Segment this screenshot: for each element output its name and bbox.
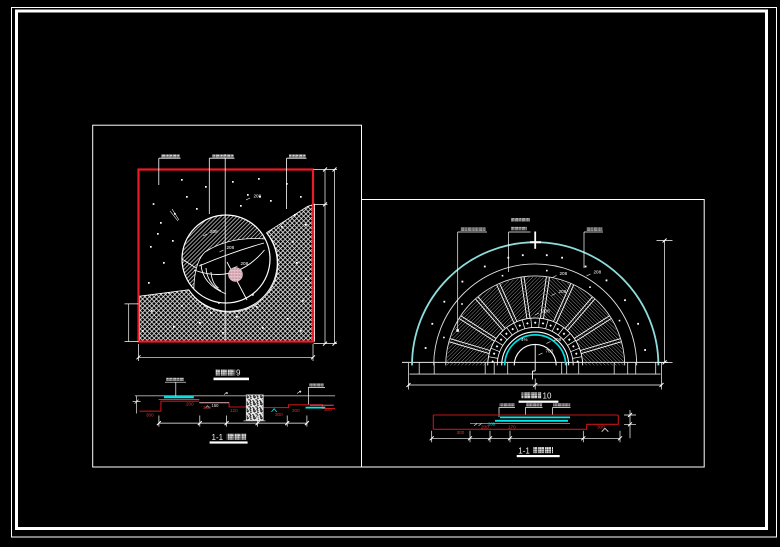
svg-text:208: 208	[227, 245, 235, 250]
svg-text:300: 300	[324, 407, 332, 412]
svg-text:300: 300	[146, 413, 154, 418]
svg-text:208: 208	[488, 422, 496, 427]
svg-text:200: 200	[292, 408, 300, 413]
svg-text:208: 208	[559, 289, 567, 294]
svg-text:208: 208	[560, 271, 568, 276]
svg-text:1-1: 1-1	[518, 446, 530, 455]
svg-text:10: 10	[543, 391, 552, 400]
svg-text:4%: 4%	[521, 337, 528, 342]
svg-text:170: 170	[508, 425, 516, 430]
svg-text:700: 700	[546, 349, 554, 354]
svg-text:200: 200	[481, 425, 489, 430]
svg-text:120: 120	[230, 408, 238, 413]
svg-text:300: 300	[203, 405, 211, 410]
svg-text:300: 300	[457, 430, 465, 435]
svg-text:300: 300	[275, 412, 283, 417]
svg-text:208: 208	[542, 309, 550, 314]
svg-text:150: 150	[212, 403, 220, 408]
svg-text:208: 208	[254, 194, 262, 199]
svg-text:9: 9	[236, 369, 241, 378]
svg-text:300: 300	[597, 425, 605, 430]
svg-text:200: 200	[186, 401, 194, 406]
svg-text:208: 208	[241, 261, 249, 266]
svg-text:208: 208	[554, 337, 562, 342]
svg-text:1-1: 1-1	[212, 433, 224, 442]
svg-text:208: 208	[594, 270, 602, 275]
svg-text:208: 208	[210, 229, 218, 234]
